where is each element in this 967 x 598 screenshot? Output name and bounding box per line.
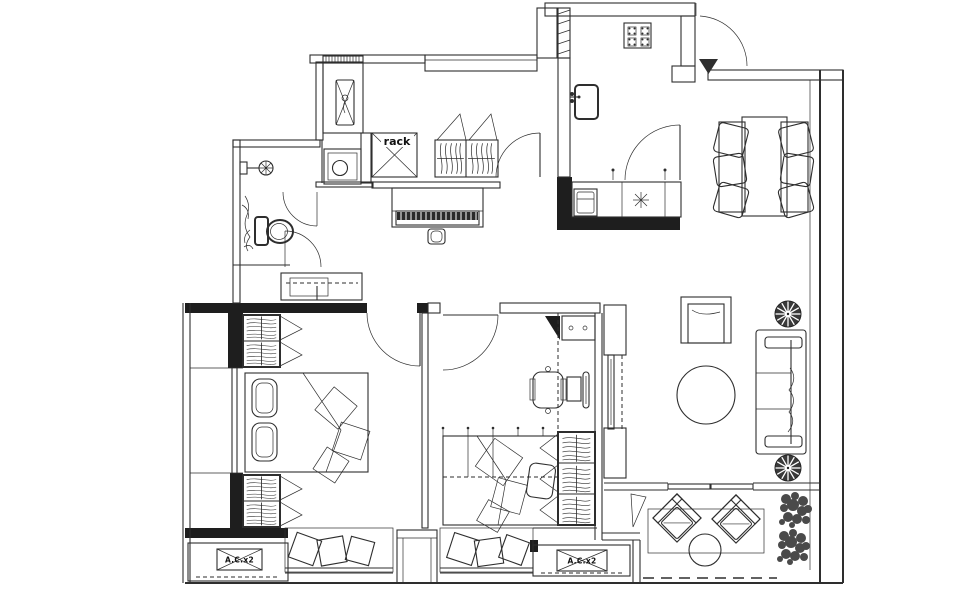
bay-window-cushions-left xyxy=(285,528,393,572)
entry-door-arc xyxy=(700,16,747,66)
kitchen-stove-icon xyxy=(624,23,651,48)
potted-plant-icon xyxy=(775,301,801,327)
piano-icon xyxy=(392,188,483,227)
toilet-icon xyxy=(255,217,293,245)
bathroom-plant-icon xyxy=(242,196,253,251)
kitchen-door-arc xyxy=(625,125,680,180)
corner-shelf-icon xyxy=(562,316,595,340)
balcony-door-leaf xyxy=(631,494,646,527)
cooktop-star-icon xyxy=(633,192,649,208)
balcony-table xyxy=(689,534,721,566)
bathroom xyxy=(240,149,361,251)
entry-arrow xyxy=(699,59,718,74)
wardrobe2-icon xyxy=(540,432,595,525)
round-coffee-table xyxy=(677,366,735,424)
dining-bench-left xyxy=(719,122,745,212)
wardrobe-top-icon xyxy=(243,315,302,367)
shower-icon xyxy=(240,161,273,175)
sofa-icon xyxy=(756,330,806,454)
lounge-chair-icon xyxy=(712,495,760,543)
dining-bench-right xyxy=(781,122,808,212)
desk-chair-icon xyxy=(530,367,566,414)
bedroom1-door-arc xyxy=(367,313,420,366)
hall-door-arc xyxy=(496,133,540,177)
piano-stool-icon xyxy=(428,229,445,244)
counter-appliance-icon xyxy=(574,189,597,216)
storage-rack-icon: rack xyxy=(372,133,417,177)
ac-unit-left: A.C.x2 xyxy=(188,543,288,581)
bay-window-cushions-right xyxy=(440,528,533,572)
pillow xyxy=(526,462,556,499)
kitchen-counter xyxy=(572,169,681,218)
ac-left-label: A.C.x2 xyxy=(225,556,254,565)
tv-cabinet-icon xyxy=(604,305,626,478)
washing-machine-icon xyxy=(336,80,354,125)
double-bed-icon xyxy=(245,373,370,483)
ac-unit-right: A.C.x2 xyxy=(533,545,630,576)
floor-plan-page: rack xyxy=(0,0,967,598)
desk-icon xyxy=(567,372,589,408)
coat-closet-icon xyxy=(435,114,498,177)
armchair-icon xyxy=(681,297,731,343)
balcony xyxy=(643,492,812,578)
bathroom-sink-icon xyxy=(324,149,361,184)
sliding-door-panel xyxy=(711,484,753,489)
hall-cabinet-icon xyxy=(281,273,362,300)
shrub-icon xyxy=(777,529,810,565)
bedroom-study xyxy=(440,313,595,572)
floor-plan-canvas: rack xyxy=(0,0,967,598)
bedroom2-door-arc xyxy=(443,315,498,370)
kitchen xyxy=(570,23,681,217)
lounge-chair-icon xyxy=(653,494,701,542)
wardrobe-bottom-icon xyxy=(243,475,302,527)
living-room xyxy=(604,297,806,481)
potted-plant-icon xyxy=(775,455,801,481)
utility-area: rack xyxy=(323,62,498,177)
wc-door-arc xyxy=(285,231,321,267)
hallway xyxy=(281,188,483,300)
walls xyxy=(183,3,843,583)
shrub-icon xyxy=(779,492,812,528)
sliding-door-panel xyxy=(668,484,710,489)
kitchen-sink-icon xyxy=(570,85,598,119)
ac-right-label: A.C.x2 xyxy=(567,557,596,566)
dining-area xyxy=(712,117,814,219)
rack-label: rack xyxy=(384,135,411,148)
bathroom-door-arc xyxy=(283,192,317,226)
dining-chairs xyxy=(712,122,814,219)
